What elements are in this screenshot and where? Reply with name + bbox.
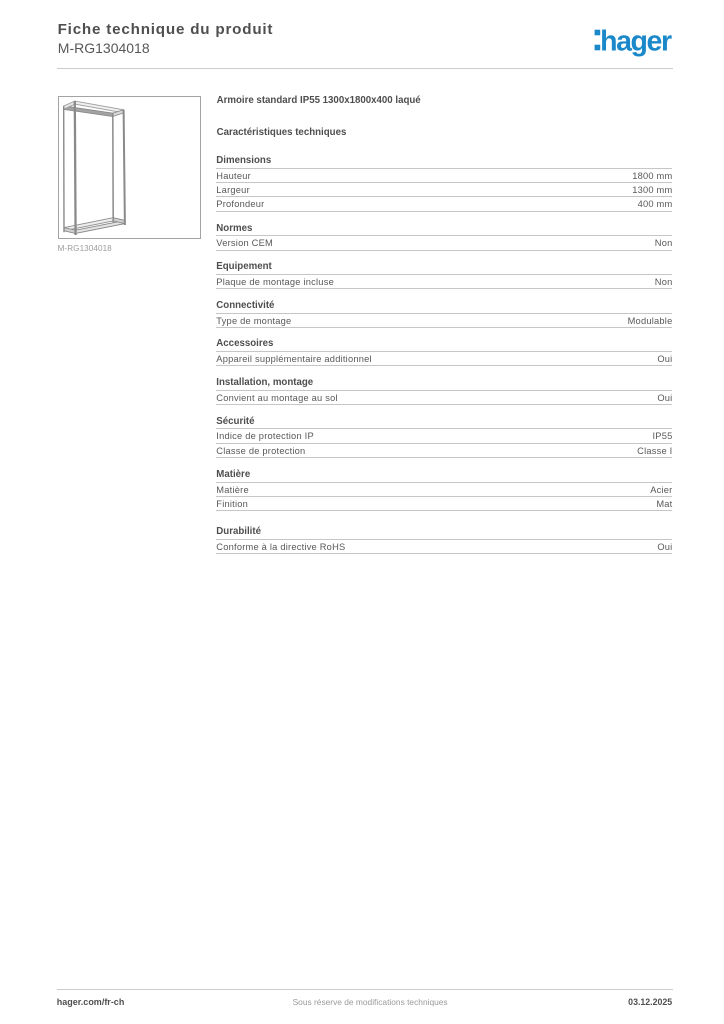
svg-text:hager: hager — [600, 25, 672, 57]
